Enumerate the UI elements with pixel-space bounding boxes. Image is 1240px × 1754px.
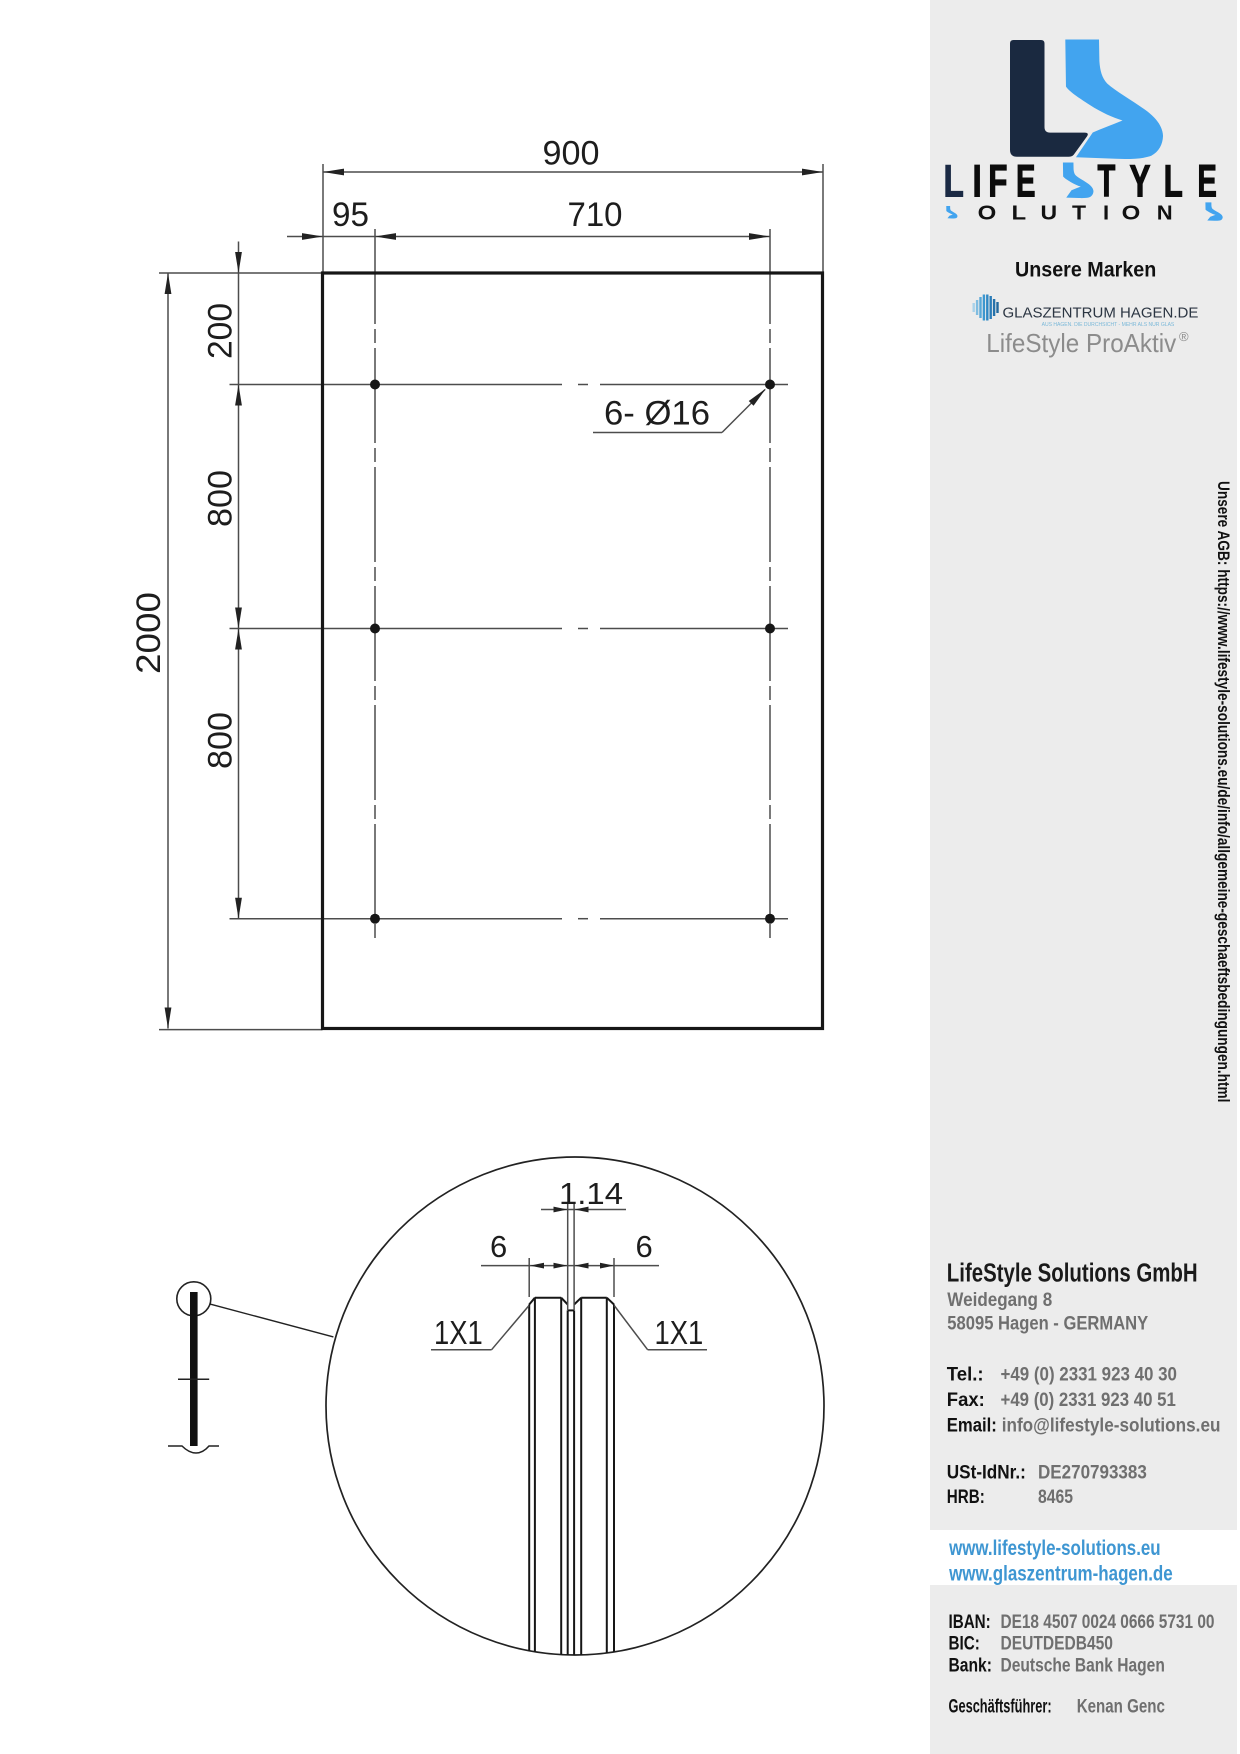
svg-text:6: 6 [490, 1229, 507, 1264]
svg-text:Bank:: Bank: [949, 1654, 992, 1676]
svg-text:2000: 2000 [130, 592, 168, 674]
svg-text:Deutsche Bank Hagen: Deutsche Bank Hagen [1001, 1654, 1165, 1676]
svg-text:I: I [1103, 202, 1109, 224]
svg-text:I: I [973, 157, 982, 207]
svg-text:®: ® [1179, 329, 1189, 344]
svg-text:Y: Y [1130, 157, 1151, 207]
svg-text:Kenan Genc: Kenan Genc [1077, 1695, 1166, 1717]
svg-text:+49 (0) 2331 923 40 30: +49 (0) 2331 923 40 30 [1001, 1364, 1177, 1385]
svg-text:O: O [978, 201, 997, 224]
svg-text:DE270793383: DE270793383 [1038, 1462, 1147, 1483]
svg-text:F: F [988, 157, 1007, 207]
svg-text:www.glaszentrum-hagen.de: www.glaszentrum-hagen.de [948, 1563, 1173, 1586]
svg-text:www.lifestyle-solutions.eu: www.lifestyle-solutions.eu [948, 1538, 1160, 1561]
svg-text:+49 (0) 2331 923 40 51: +49 (0) 2331 923 40 51 [1001, 1389, 1176, 1410]
svg-text:L: L [1012, 201, 1027, 224]
svg-text:E: E [1016, 157, 1036, 207]
svg-text:T: T [1072, 201, 1086, 224]
svg-text:Tel.:: Tel.: [947, 1363, 984, 1384]
svg-text:AUS HAGEN. DIE DURCHSICHT - ME: AUS HAGEN. DIE DURCHSICHT - MEHR ALS NUR… [1042, 322, 1175, 328]
svg-text:800: 800 [201, 712, 239, 769]
svg-text:710: 710 [568, 196, 623, 234]
svg-text:U: U [1041, 201, 1058, 224]
svg-text:1X1: 1X1 [434, 1316, 483, 1352]
svg-text:E: E [1197, 157, 1217, 207]
svg-text:6- Ø16: 6- Ø16 [604, 395, 710, 433]
svg-text:L: L [1164, 157, 1183, 207]
svg-text:Unsere AGB: https://www.lifest: Unsere AGB: https://www.lifestyle-soluti… [1214, 481, 1233, 1102]
svg-text:Email:: Email: [947, 1414, 997, 1435]
svg-text:8465: 8465 [1038, 1485, 1073, 1507]
svg-text:1.14: 1.14 [559, 1176, 623, 1211]
svg-text:58095 Hagen - GERMANY: 58095 Hagen - GERMANY [947, 1312, 1148, 1333]
svg-text:HRB:: HRB: [947, 1485, 985, 1507]
svg-text:1X1: 1X1 [655, 1316, 704, 1352]
svg-text:T: T [1098, 157, 1116, 207]
svg-text:USt-IdNr.:: USt-IdNr.: [947, 1462, 1026, 1483]
svg-text:N: N [1157, 202, 1173, 224]
svg-text:LifeStyle Solutions GmbH: LifeStyle Solutions GmbH [947, 1258, 1198, 1287]
svg-text:Weidegang 8: Weidegang 8 [947, 1289, 1052, 1310]
svg-text:LifeStyle ProAktiv: LifeStyle ProAktiv [986, 329, 1176, 358]
svg-text:info@lifestyle-solutions.eu: info@lifestyle-solutions.eu [1002, 1415, 1221, 1436]
svg-text:IBAN:: IBAN: [949, 1610, 991, 1632]
svg-text:Unsere Marken: Unsere Marken [1015, 259, 1156, 282]
svg-text:Fax:: Fax: [947, 1389, 985, 1410]
svg-text:900: 900 [543, 135, 600, 173]
svg-text:O: O [1122, 201, 1141, 224]
svg-text:800: 800 [201, 470, 239, 527]
svg-text:DEUTDEDB450: DEUTDEDB450 [1001, 1632, 1113, 1654]
svg-text:95: 95 [332, 196, 369, 234]
svg-text:6: 6 [636, 1229, 653, 1264]
svg-text:200: 200 [201, 303, 239, 359]
svg-text:L: L [944, 157, 964, 207]
svg-text:Geschäftsführer:: Geschäftsführer: [949, 1696, 1052, 1717]
svg-text:GLASZENTRUM HAGEN.DE: GLASZENTRUM HAGEN.DE [1003, 305, 1199, 322]
svg-text:BIC:: BIC: [949, 1632, 980, 1654]
svg-text:DE18 4507 0024 0666 5731 00: DE18 4507 0024 0666 5731 00 [1001, 1610, 1215, 1632]
